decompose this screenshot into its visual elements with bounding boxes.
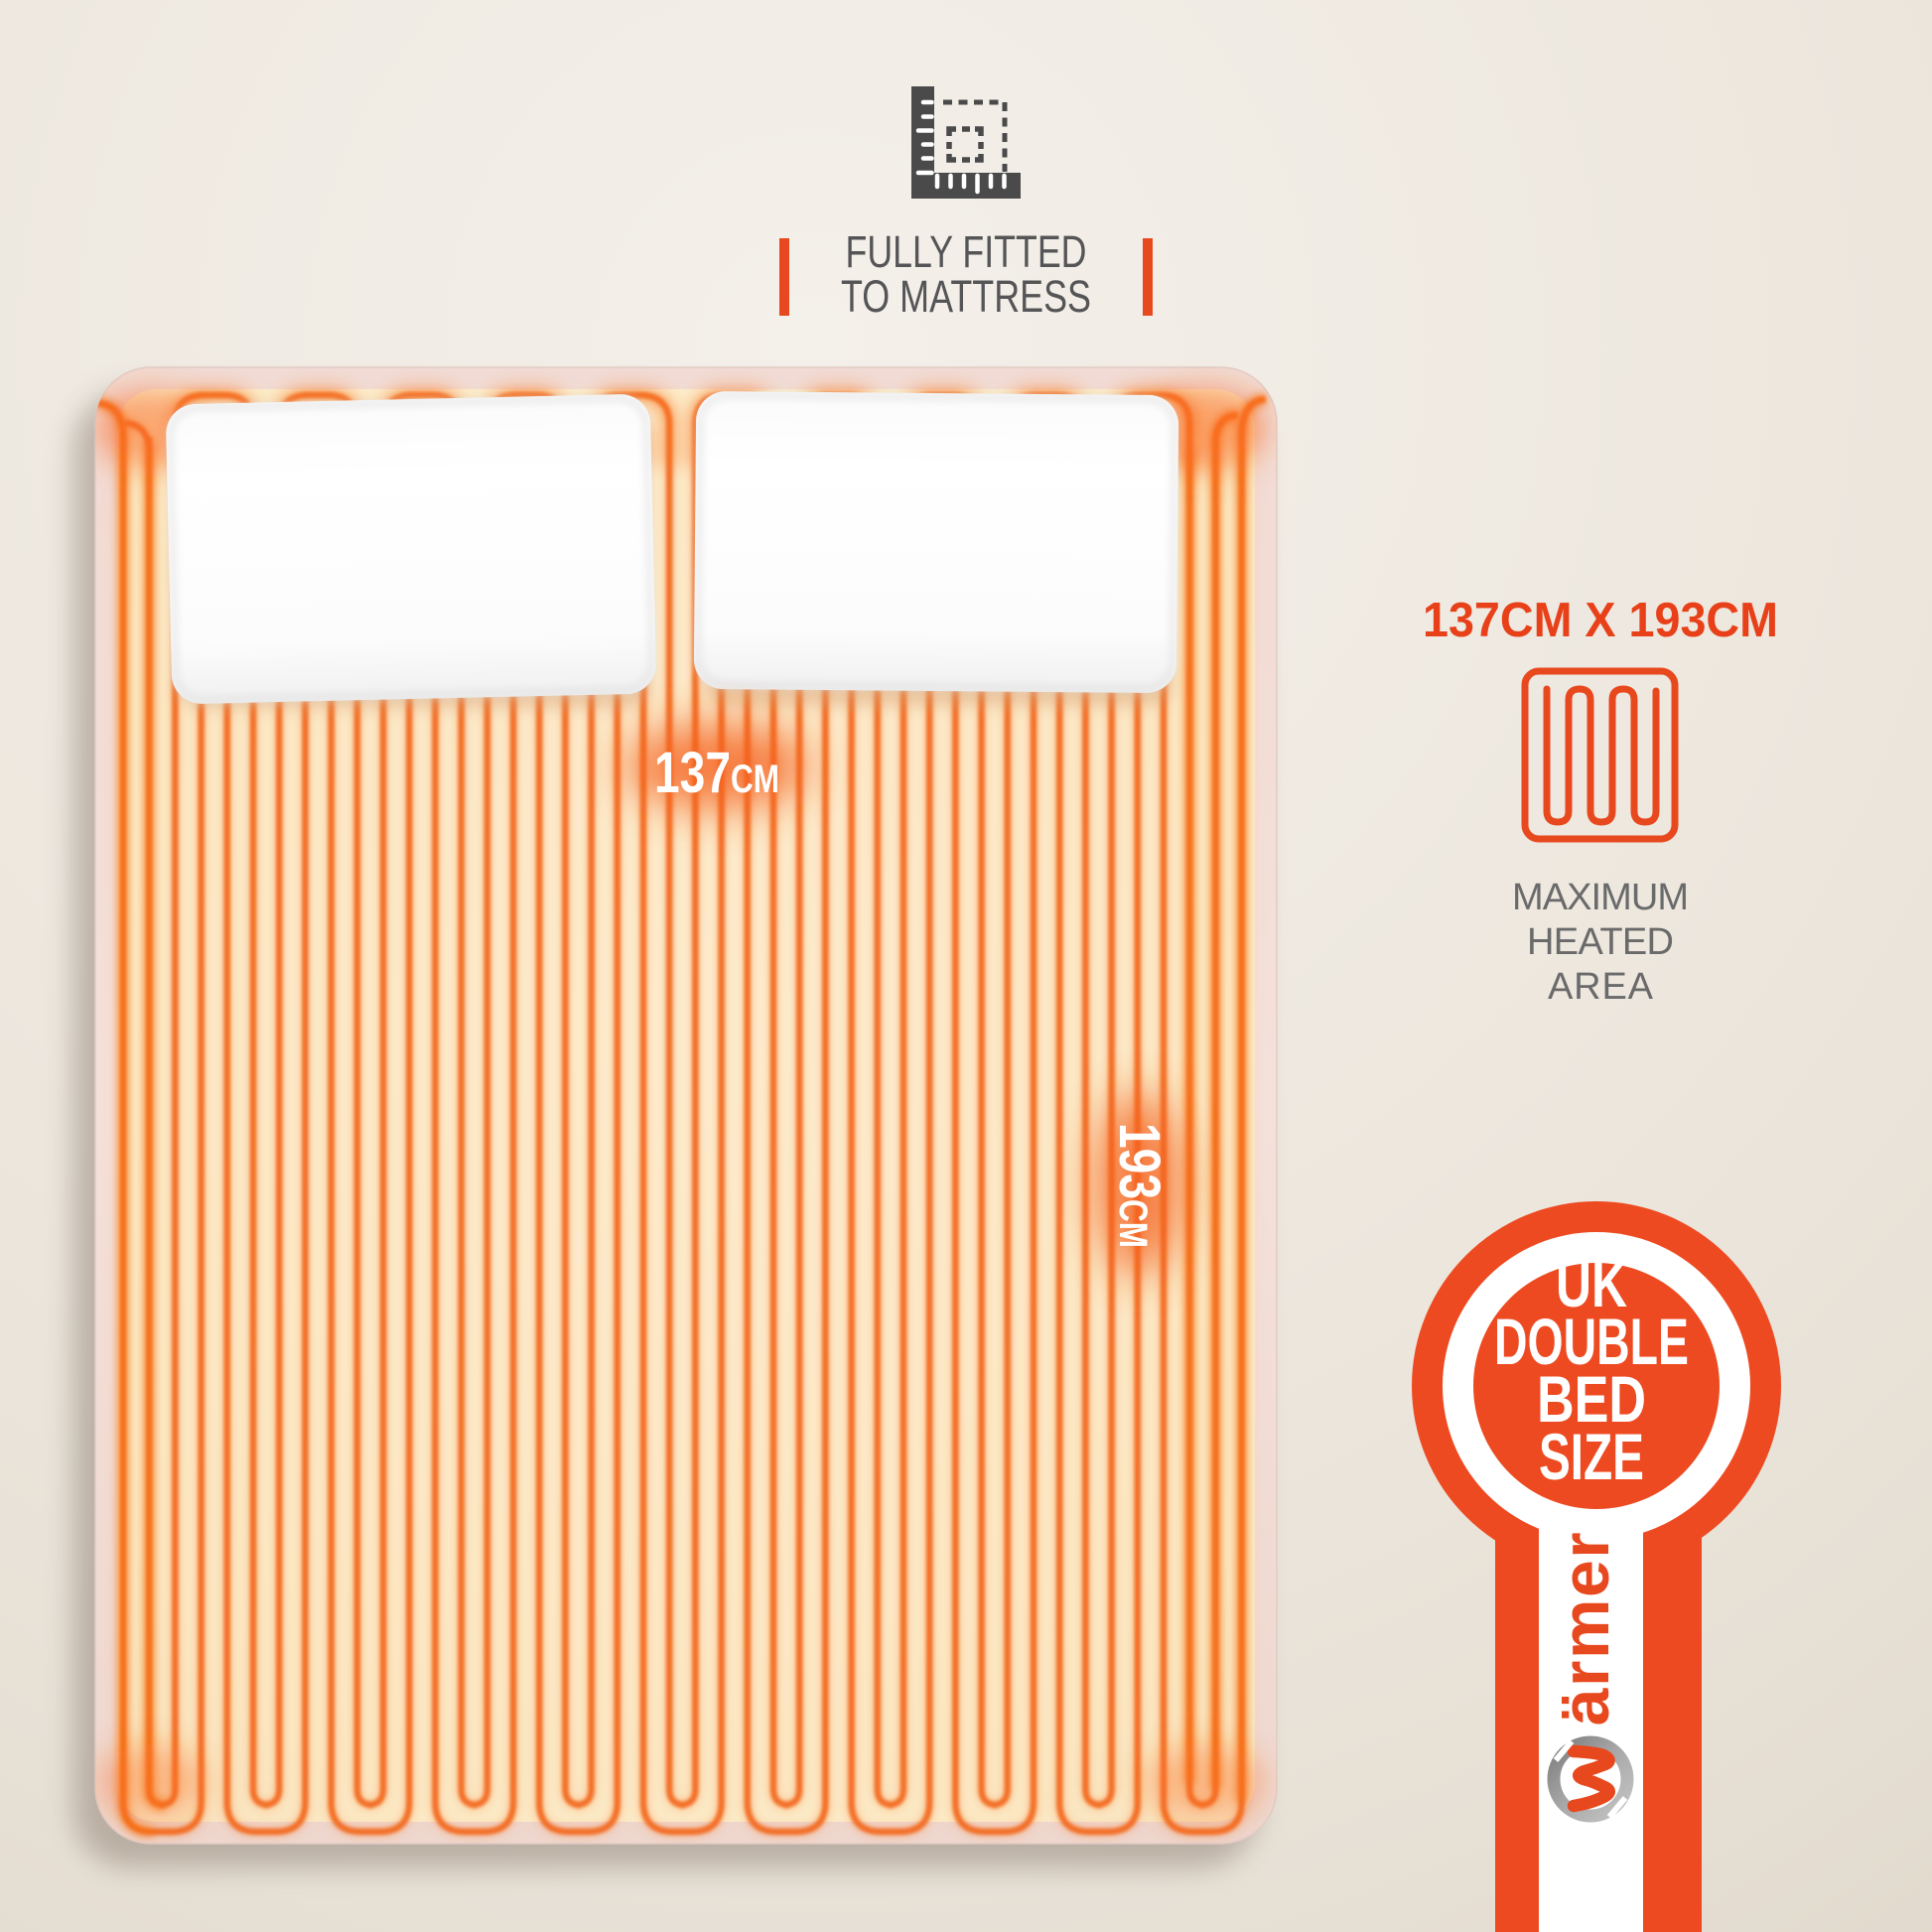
svg-text:ärmer: ärmer [1548, 1531, 1623, 1726]
svg-text:AREA: AREA [1548, 966, 1654, 1008]
svg-text:137CM X 193CM: 137CM X 193CM [1423, 594, 1778, 647]
svg-text:SIZE: SIZE [1539, 1420, 1644, 1493]
svg-text:HEATED: HEATED [1527, 921, 1674, 963]
svg-text:TO MATTRESS: TO MATTRESS [841, 271, 1091, 322]
svg-text:FULLY FITTED: FULLY FITTED [846, 226, 1087, 277]
svg-text:MAXIMUM: MAXIMUM [1512, 877, 1689, 918]
